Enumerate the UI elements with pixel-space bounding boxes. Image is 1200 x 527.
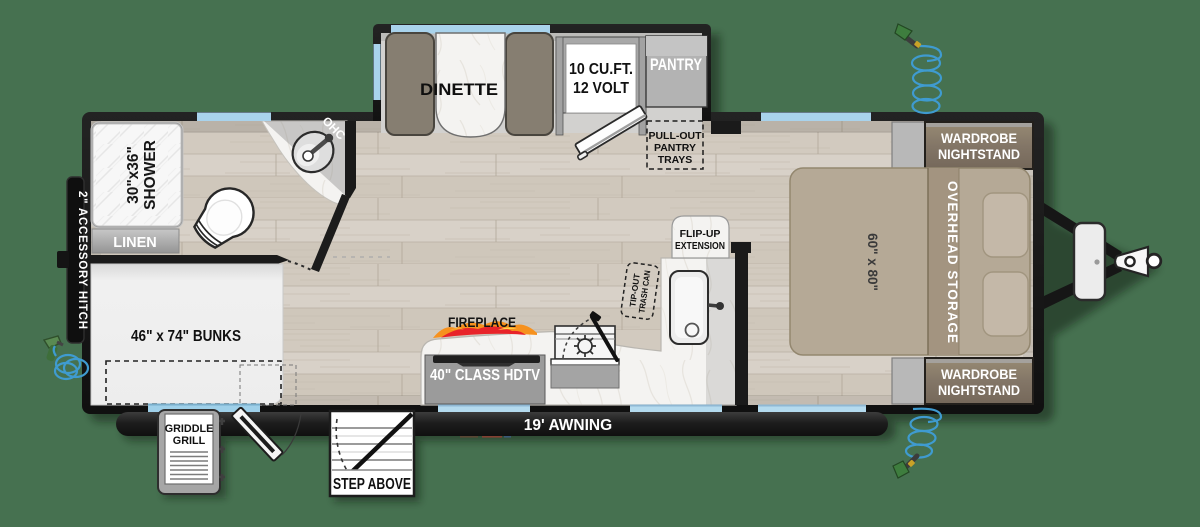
- svg-text:2" ACCESSORY HITCH: 2" ACCESSORY HITCH: [76, 191, 88, 329]
- svg-text:12 VOLT: 12 VOLT: [573, 80, 629, 97]
- svg-text:LINEN: LINEN: [113, 235, 157, 251]
- svg-text:40" CLASS HDTV: 40" CLASS HDTV: [430, 367, 541, 384]
- svg-text:OVERHEAD STORAGE: OVERHEAD STORAGE: [945, 181, 960, 343]
- svg-text:FLIP-UPEXTENSION: FLIP-UPEXTENSION: [675, 228, 725, 252]
- svg-text:STEP ABOVE: STEP ABOVE: [333, 476, 411, 493]
- svg-text:10 CU.FT.: 10 CU.FT.: [569, 61, 633, 78]
- svg-text:DINETTE: DINETTE: [420, 80, 498, 99]
- svg-text:WARDROBE: WARDROBE: [941, 366, 1017, 382]
- svg-text:FIREPLACE: FIREPLACE: [448, 315, 516, 330]
- svg-text:46" x 74" BUNKS: 46" x 74" BUNKS: [131, 328, 241, 345]
- svg-text:NIGHTSTAND: NIGHTSTAND: [938, 146, 1020, 162]
- svg-text:19' AWNING: 19' AWNING: [524, 417, 612, 434]
- svg-text:NIGHTSTAND: NIGHTSTAND: [938, 382, 1020, 398]
- svg-text:WARDROBE: WARDROBE: [941, 130, 1017, 146]
- svg-text:30"x36"SHOWER: 30"x36"SHOWER: [125, 140, 159, 210]
- svg-text:60" x 80": 60" x 80": [865, 233, 880, 291]
- svg-text:PANTRY: PANTRY: [650, 56, 702, 74]
